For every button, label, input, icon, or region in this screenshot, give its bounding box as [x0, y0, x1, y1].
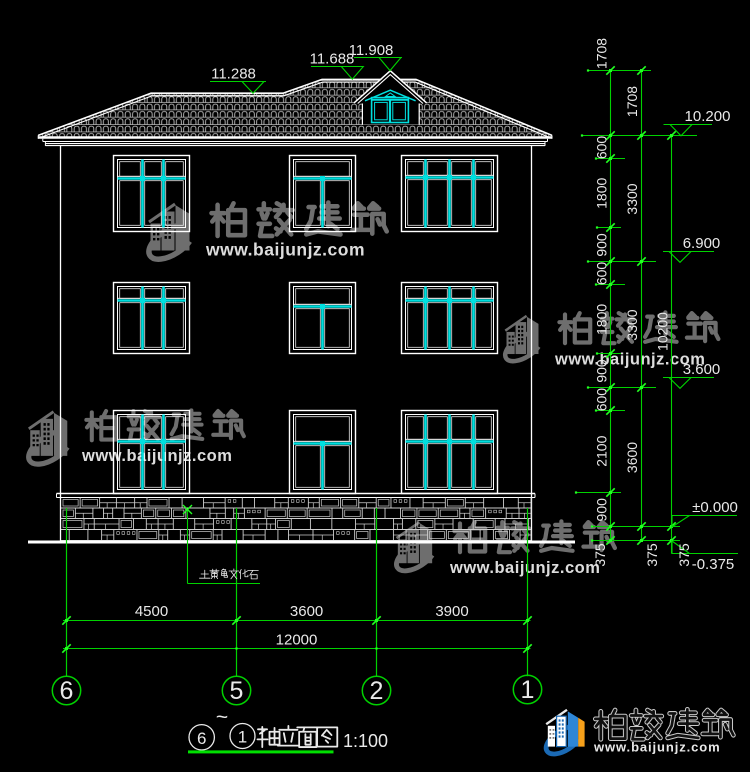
svg-text:www.baijunjz.com: www.baijunjz.com	[449, 559, 600, 577]
svg-text:600: 600	[594, 262, 610, 286]
svg-text:3900: 3900	[435, 603, 468, 620]
svg-text:2: 2	[370, 677, 384, 705]
svg-text:3300: 3300	[624, 183, 640, 214]
svg-text:1708: 1708	[594, 38, 610, 69]
svg-text:6.900: 6.900	[683, 235, 721, 252]
svg-text:11.908: 11.908	[349, 42, 394, 59]
svg-text:1800: 1800	[594, 178, 610, 209]
svg-text:1:100: 1:100	[343, 731, 388, 751]
svg-text:1708: 1708	[624, 86, 640, 117]
svg-text:-0.375: -0.375	[692, 556, 735, 573]
svg-text:900: 900	[594, 359, 610, 383]
svg-text:www.baijunjz.com: www.baijunjz.com	[593, 740, 721, 755]
svg-text:3300: 3300	[624, 309, 640, 340]
svg-text:3600: 3600	[624, 442, 640, 473]
svg-text:2100: 2100	[594, 435, 610, 466]
svg-text:12000: 12000	[276, 632, 318, 649]
svg-text:11.288: 11.288	[211, 66, 256, 83]
svg-text:~: ~	[216, 706, 228, 729]
svg-text:600: 600	[594, 388, 610, 412]
svg-text:10200: 10200	[655, 312, 671, 351]
svg-text:375: 375	[592, 543, 608, 567]
svg-text:6: 6	[197, 729, 206, 748]
svg-text:900: 900	[594, 498, 610, 522]
svg-text:600: 600	[594, 136, 610, 160]
svg-text:4500: 4500	[135, 603, 168, 620]
svg-text:375: 375	[644, 543, 660, 567]
svg-text:±0.000: ±0.000	[692, 499, 738, 516]
svg-text:3600: 3600	[290, 603, 323, 620]
svg-text:1800: 1800	[594, 304, 610, 335]
svg-text:10.200: 10.200	[685, 108, 731, 125]
svg-text:1: 1	[521, 676, 535, 704]
svg-text:900: 900	[594, 233, 610, 257]
svg-text:5: 5	[230, 677, 244, 705]
svg-text:375: 375	[676, 543, 692, 567]
svg-text:3.600: 3.600	[683, 361, 721, 378]
svg-text:www.baijunjz.com: www.baijunjz.com	[81, 447, 232, 465]
svg-text:www.baijunjz.com: www.baijunjz.com	[205, 240, 365, 260]
svg-text:1: 1	[238, 728, 247, 747]
svg-text:6: 6	[60, 677, 74, 705]
